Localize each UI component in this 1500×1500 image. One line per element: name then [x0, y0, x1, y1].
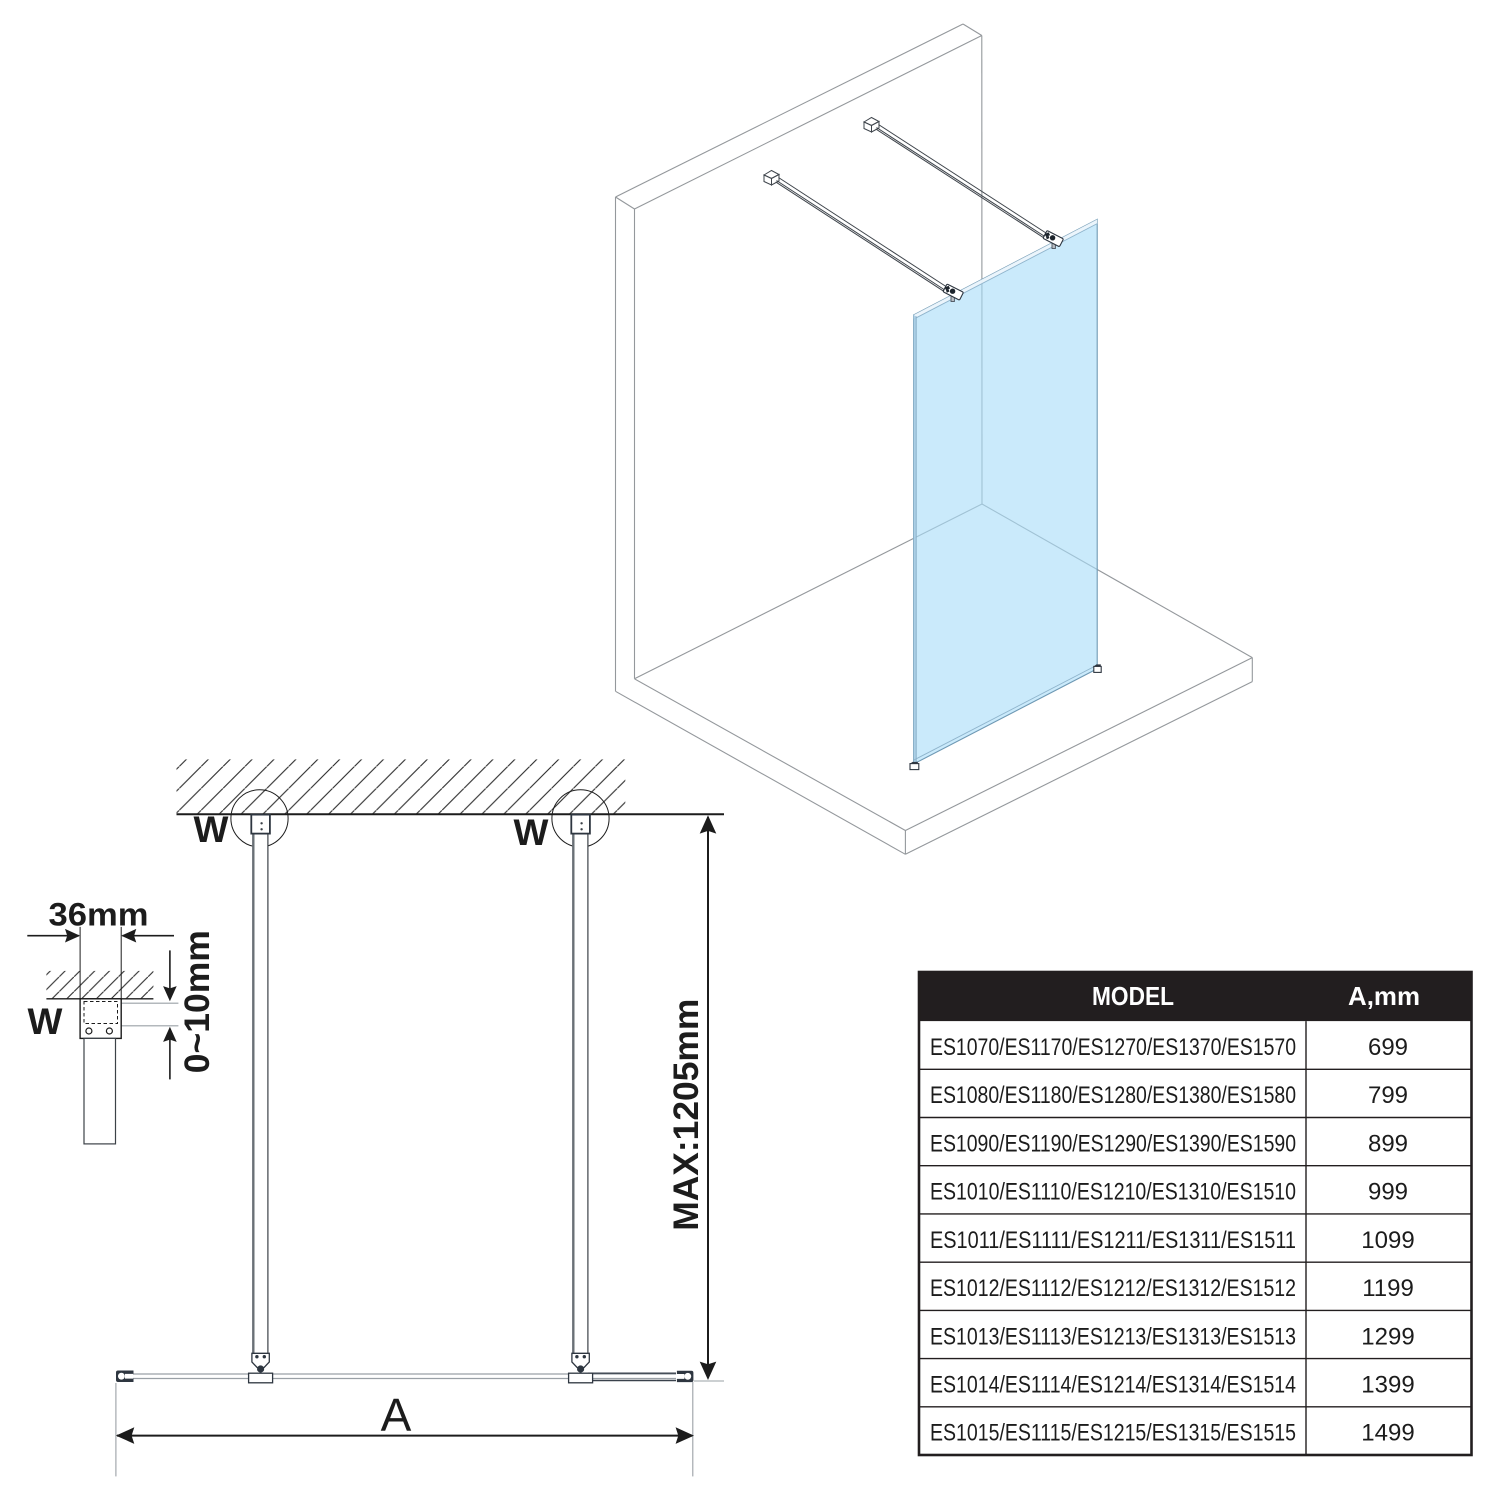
- svg-text:ES1014/ES1114/ES1214/ES1314/ES: ES1014/ES1114/ES1214/ES1314/ES1514: [930, 1372, 1296, 1399]
- svg-text:A: A: [381, 1389, 412, 1441]
- svg-text:1099: 1099: [1361, 1227, 1414, 1254]
- svg-text:ES1090/ES1190/ES1290/ES1390/ES: ES1090/ES1190/ES1290/ES1390/ES1590: [930, 1130, 1296, 1157]
- svg-text:0~10mm: 0~10mm: [178, 930, 217, 1073]
- svg-text:W: W: [28, 1001, 63, 1042]
- svg-text:699: 699: [1368, 1034, 1408, 1061]
- svg-text:ES1011/ES1111/ES1211/ES1311/ES: ES1011/ES1111/ES1211/ES1311/ES1511: [930, 1227, 1296, 1254]
- svg-text:ES1070/ES1170/ES1270/ES1370/ES: ES1070/ES1170/ES1270/ES1370/ES1570: [930, 1034, 1296, 1061]
- svg-text:MODEL: MODEL: [1092, 981, 1174, 1011]
- svg-text:W: W: [514, 812, 549, 853]
- svg-text:A,mm: A,mm: [1348, 981, 1420, 1011]
- svg-text:799: 799: [1368, 1082, 1408, 1109]
- svg-text:1199: 1199: [1362, 1275, 1414, 1302]
- svg-text:ES1013/ES1113/ES1213/ES1313/ES: ES1013/ES1113/ES1213/ES1313/ES1513: [930, 1323, 1296, 1350]
- svg-text:36mm: 36mm: [49, 897, 149, 933]
- svg-text:1399: 1399: [1361, 1372, 1414, 1399]
- svg-text:1499: 1499: [1361, 1420, 1414, 1447]
- svg-text:899: 899: [1368, 1130, 1408, 1157]
- svg-text:1299: 1299: [1361, 1323, 1414, 1350]
- svg-text:W: W: [194, 809, 229, 850]
- svg-text:MAX:1205mm: MAX:1205mm: [667, 999, 706, 1231]
- svg-text:ES1015/ES1115/ES1215/ES1315/ES: ES1015/ES1115/ES1215/ES1315/ES1515: [930, 1420, 1296, 1447]
- svg-text:999: 999: [1368, 1179, 1408, 1206]
- svg-text:ES1012/ES1112/ES1212/ES1312/ES: ES1012/ES1112/ES1212/ES1312/ES1512: [930, 1275, 1296, 1302]
- svg-text:ES1080/ES1180/ES1280/ES1380/ES: ES1080/ES1180/ES1280/ES1380/ES1580: [930, 1082, 1296, 1109]
- svg-text:ES1010/ES1110/ES1210/ES1310/ES: ES1010/ES1110/ES1210/ES1310/ES1510: [930, 1179, 1296, 1206]
